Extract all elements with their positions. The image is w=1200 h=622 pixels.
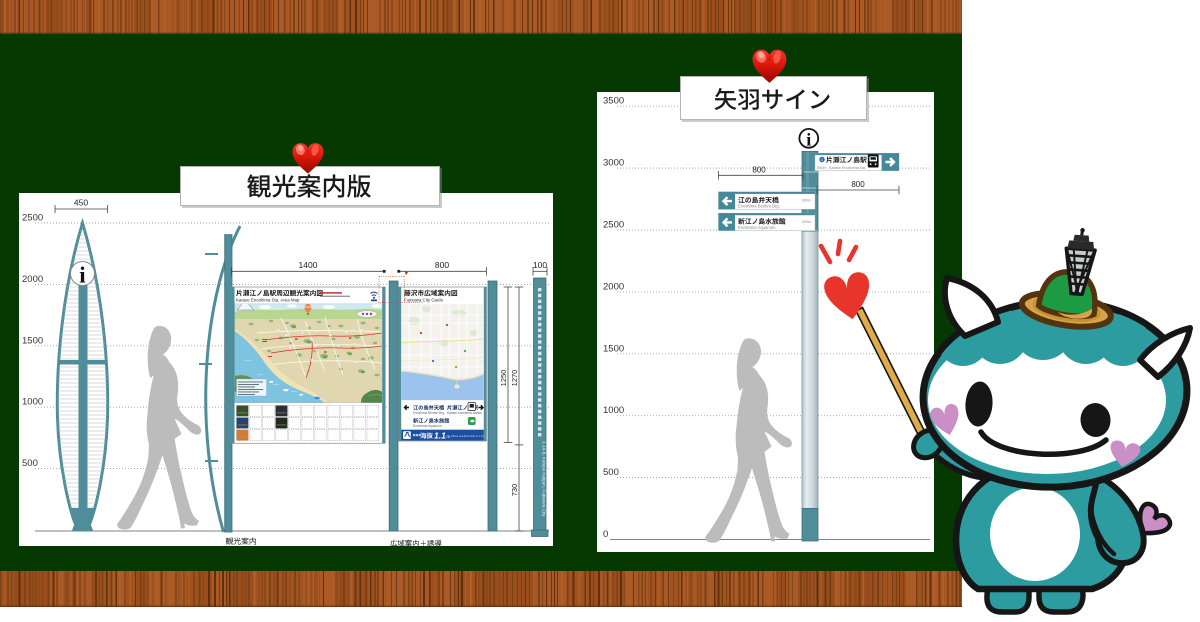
svg-text:000m: 000m xyxy=(817,166,827,170)
svg-text:500: 500 xyxy=(22,458,38,469)
svg-text:1250: 1250 xyxy=(499,370,508,387)
svg-text:Enoshima Aquarium: Enoshima Aquarium xyxy=(413,424,442,428)
svg-text:2000: 2000 xyxy=(603,281,624,292)
svg-text:1000: 1000 xyxy=(22,397,43,408)
svg-text:Katase-enoshima station: Katase-enoshima station xyxy=(447,411,482,415)
svg-text:3500: 3500 xyxy=(603,96,624,107)
svg-text:Enoshima Benten Brg.: Enoshima Benten Brg. xyxy=(413,411,445,415)
svg-text:1.1: 1.1 xyxy=(434,431,446,441)
svg-text:i: i xyxy=(79,263,86,288)
svg-text:500: 500 xyxy=(603,467,619,478)
svg-text:Fujisawa City Guide: Fujisawa City Guide xyxy=(404,298,444,303)
svg-text:1500: 1500 xyxy=(22,335,43,346)
svg-text:1270: 1270 xyxy=(510,370,519,387)
svg-text:Katase Enoshima Sta. Area Map: Katase Enoshima Sta. Area Map xyxy=(236,298,300,303)
svg-text:i: i xyxy=(806,130,811,150)
svg-text:2500: 2500 xyxy=(22,213,43,224)
svg-text:000m: 000m xyxy=(802,220,811,224)
svg-text:1400: 1400 xyxy=(299,260,318,270)
svg-text:1000: 1000 xyxy=(603,405,624,416)
svg-text:Enoshima Aquarium: Enoshima Aquarium xyxy=(738,225,776,230)
svg-text:1-14-8, Katase Kaigan, Fujisaw: 1-14-8, Katase Kaigan, Fujisawa City xyxy=(542,441,547,517)
svg-text:2000: 2000 xyxy=(22,274,43,285)
svg-text:Above sea level here is 1.1m: Above sea level here is 1.1m xyxy=(451,434,484,438)
svg-text:O: O xyxy=(821,158,824,162)
svg-text:3000: 3000 xyxy=(603,158,624,169)
svg-text:800: 800 xyxy=(752,166,766,175)
svg-text:450: 450 xyxy=(74,198,88,208)
svg-text:800: 800 xyxy=(435,260,449,270)
svg-text:000m: 000m xyxy=(802,199,811,203)
svg-text:Enoshima Benten Brg.: Enoshima Benten Brg. xyxy=(738,204,780,209)
svg-text:Katase Enoshima sta.: Katase Enoshima sta. xyxy=(829,166,866,170)
svg-text:730: 730 xyxy=(510,484,519,497)
svg-text:m: m xyxy=(447,434,451,439)
svg-text:0: 0 xyxy=(603,529,608,540)
svg-text:800: 800 xyxy=(851,180,865,189)
svg-text:1500: 1500 xyxy=(603,343,624,354)
svg-text:2500: 2500 xyxy=(603,220,624,231)
svg-text:100: 100 xyxy=(533,260,547,270)
